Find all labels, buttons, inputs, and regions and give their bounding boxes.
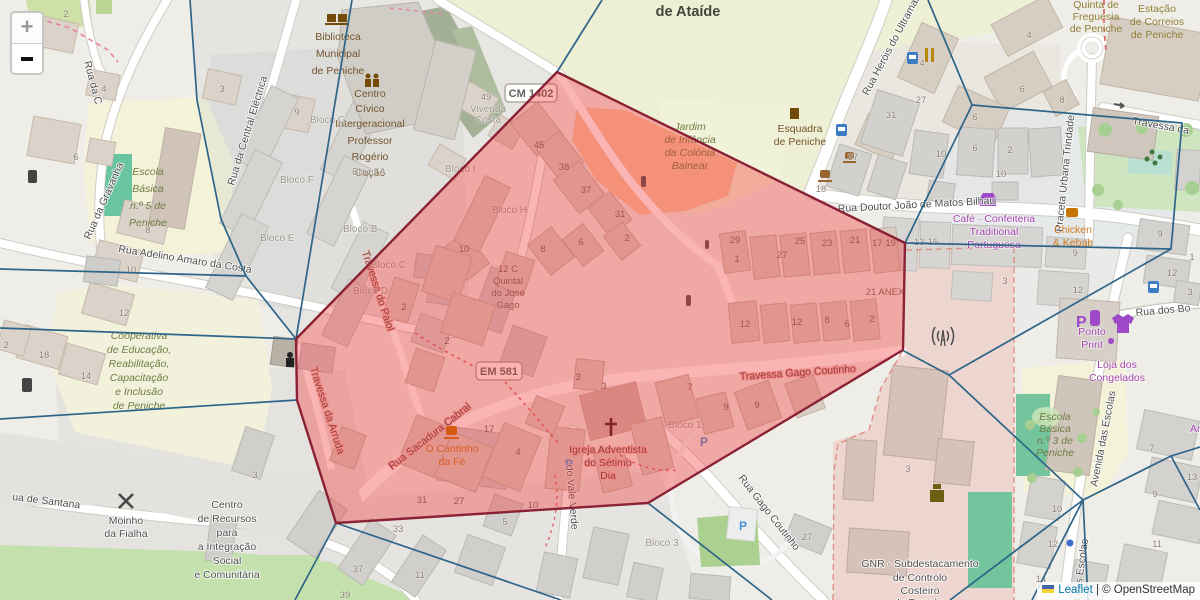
svg-text:3: 3 <box>219 84 224 95</box>
svg-text:Bloco G: Bloco G <box>310 115 346 126</box>
svg-text:Centro: Centro <box>211 499 243 511</box>
svg-text:de Peniche: de Peniche <box>1070 23 1123 35</box>
svg-text:9: 9 <box>294 107 299 118</box>
svg-text:10: 10 <box>996 169 1007 180</box>
svg-text:a Integração: a Integração <box>198 541 257 553</box>
svg-text:de Correios: de Correios <box>1130 16 1184 28</box>
svg-text:10: 10 <box>1052 504 1063 515</box>
svg-text:Centro: Centro <box>354 88 386 100</box>
svg-text:Loja dos: Loja dos <box>1097 359 1137 371</box>
svg-text:Esquadra: Esquadra <box>778 123 823 135</box>
svg-text:3: 3 <box>252 470 257 481</box>
svg-text:37: 37 <box>848 152 859 163</box>
svg-text:2: 2 <box>1007 145 1012 156</box>
svg-text:Bloco E: Bloco E <box>260 233 295 244</box>
svg-text:Cívico: Cívico <box>355 103 384 115</box>
svg-text:de Peniche: de Peniche <box>1131 29 1184 41</box>
svg-text:Escola: Escola <box>1039 411 1071 423</box>
svg-text:18: 18 <box>816 184 827 195</box>
svg-text:Reabilitação,: Reabilitação, <box>109 358 170 370</box>
svg-text:7: 7 <box>1149 443 1154 454</box>
svg-text:4: 4 <box>1026 30 1031 41</box>
svg-text:n.º 3 de: n.º 3 de <box>1037 435 1073 447</box>
svg-text:de Ataíde: de Ataíde <box>656 4 721 20</box>
svg-text:6: 6 <box>972 143 977 154</box>
svg-text:12: 12 <box>119 308 130 319</box>
svg-text:Estação: Estação <box>1138 3 1176 15</box>
svg-text:11: 11 <box>1152 539 1162 550</box>
svg-text:4: 4 <box>101 84 106 95</box>
svg-text:Intergeracional: Intergeracional <box>335 118 404 130</box>
svg-text:Bloco 3: Bloco 3 <box>645 538 679 549</box>
svg-text:P: P <box>739 519 747 533</box>
svg-text:12: 12 <box>1073 285 1084 296</box>
svg-text:10: 10 <box>936 149 947 160</box>
svg-text:6: 6 <box>972 112 977 123</box>
svg-text:49: 49 <box>481 92 492 103</box>
svg-text:4: 4 <box>919 58 924 69</box>
svg-text:Print: Print <box>1081 339 1103 351</box>
svg-text:2: 2 <box>3 340 8 351</box>
svg-text:39: 39 <box>340 590 351 600</box>
svg-text:9: 9 <box>1072 248 1077 259</box>
svg-text:de Peniche: de Peniche <box>774 136 827 148</box>
svg-text:Social: Social <box>213 555 242 567</box>
svg-text:11: 11 <box>415 570 425 581</box>
svg-text:37: 37 <box>353 564 364 575</box>
svg-text:33: 33 <box>393 524 404 535</box>
svg-text:GNR - Subdestacamento: GNR - Subdestacamento <box>861 558 978 570</box>
svg-text:9: 9 <box>1157 229 1162 240</box>
svg-text:27: 27 <box>916 95 927 106</box>
svg-text:n.º 5 de: n.º 5 de <box>130 200 166 212</box>
svg-text:Básica: Básica <box>132 183 164 195</box>
svg-text:Freguesia: Freguesia <box>1073 11 1120 23</box>
svg-text:Básica: Básica <box>1039 423 1071 435</box>
svg-text:para: para <box>216 527 237 539</box>
svg-text:31: 31 <box>886 110 897 121</box>
svg-text:3: 3 <box>1187 287 1192 298</box>
svg-text:Café · Confeiteria: Café · Confeiteria <box>953 213 1035 225</box>
svg-text:12: 12 <box>1048 539 1059 550</box>
svg-text:Ana: Ana <box>1190 423 1200 435</box>
svg-text:da Fialha: da Fialha <box>104 528 147 540</box>
svg-text:Escola: Escola <box>132 166 164 178</box>
svg-text:18: 18 <box>39 350 50 361</box>
svg-text:e Inclusão: e Inclusão <box>115 386 163 398</box>
svg-text:3: 3 <box>1002 276 1007 287</box>
svg-text:6: 6 <box>1019 84 1024 95</box>
svg-text:Ponto: Ponto <box>1078 326 1106 338</box>
svg-text:e Comunitária: e Comunitária <box>194 569 260 581</box>
svg-text:Vivenda: Vivenda <box>470 104 506 115</box>
svg-text:Professor: Professor <box>348 135 393 147</box>
svg-text:12: 12 <box>1167 268 1178 279</box>
svg-text:14: 14 <box>81 371 92 382</box>
svg-text:Quinta de: Quinta de <box>1073 0 1119 11</box>
svg-text:13: 13 <box>1187 472 1198 483</box>
svg-text:5: 5 <box>502 517 507 528</box>
svg-text:Costa: Costa <box>475 115 502 126</box>
svg-text:6: 6 <box>73 152 78 163</box>
svg-text:Traditional: Traditional <box>970 226 1019 238</box>
svg-text:Costeiro: Costeiro <box>900 585 939 597</box>
svg-text:Chicken: Chicken <box>1054 224 1092 236</box>
svg-text:27: 27 <box>802 532 813 543</box>
svg-text:Capacitação: Capacitação <box>110 372 169 384</box>
svg-text:Bloco F: Bloco F <box>280 175 314 186</box>
svg-text:Biblioteca: Biblioteca <box>315 31 361 43</box>
svg-text:9: 9 <box>1152 489 1157 500</box>
svg-text:de Peniche: de Peniche <box>312 65 365 77</box>
svg-text:1: 1 <box>1189 252 1194 263</box>
svg-text:de Recursos: de Recursos <box>198 513 257 525</box>
svg-text:Rogério: Rogério <box>352 151 389 163</box>
svg-text:8: 8 <box>1059 95 1064 106</box>
svg-text:de Educação,: de Educação, <box>107 344 171 356</box>
svg-text:de Controlo: de Controlo <box>893 572 947 584</box>
svg-text:Municipal: Municipal <box>316 48 360 60</box>
svg-text:Peniche: Peniche <box>1036 447 1074 459</box>
svg-text:Bloco B: Bloco B <box>343 224 378 235</box>
svg-text:Congelados: Congelados <box>1089 372 1145 384</box>
svg-text:8: 8 <box>145 225 150 236</box>
svg-text:Bloco A: Bloco A <box>352 167 386 178</box>
svg-text:3: 3 <box>905 464 910 475</box>
svg-text:2: 2 <box>63 9 68 20</box>
svg-text:10: 10 <box>126 265 137 276</box>
svg-text:Moinho: Moinho <box>109 515 144 527</box>
